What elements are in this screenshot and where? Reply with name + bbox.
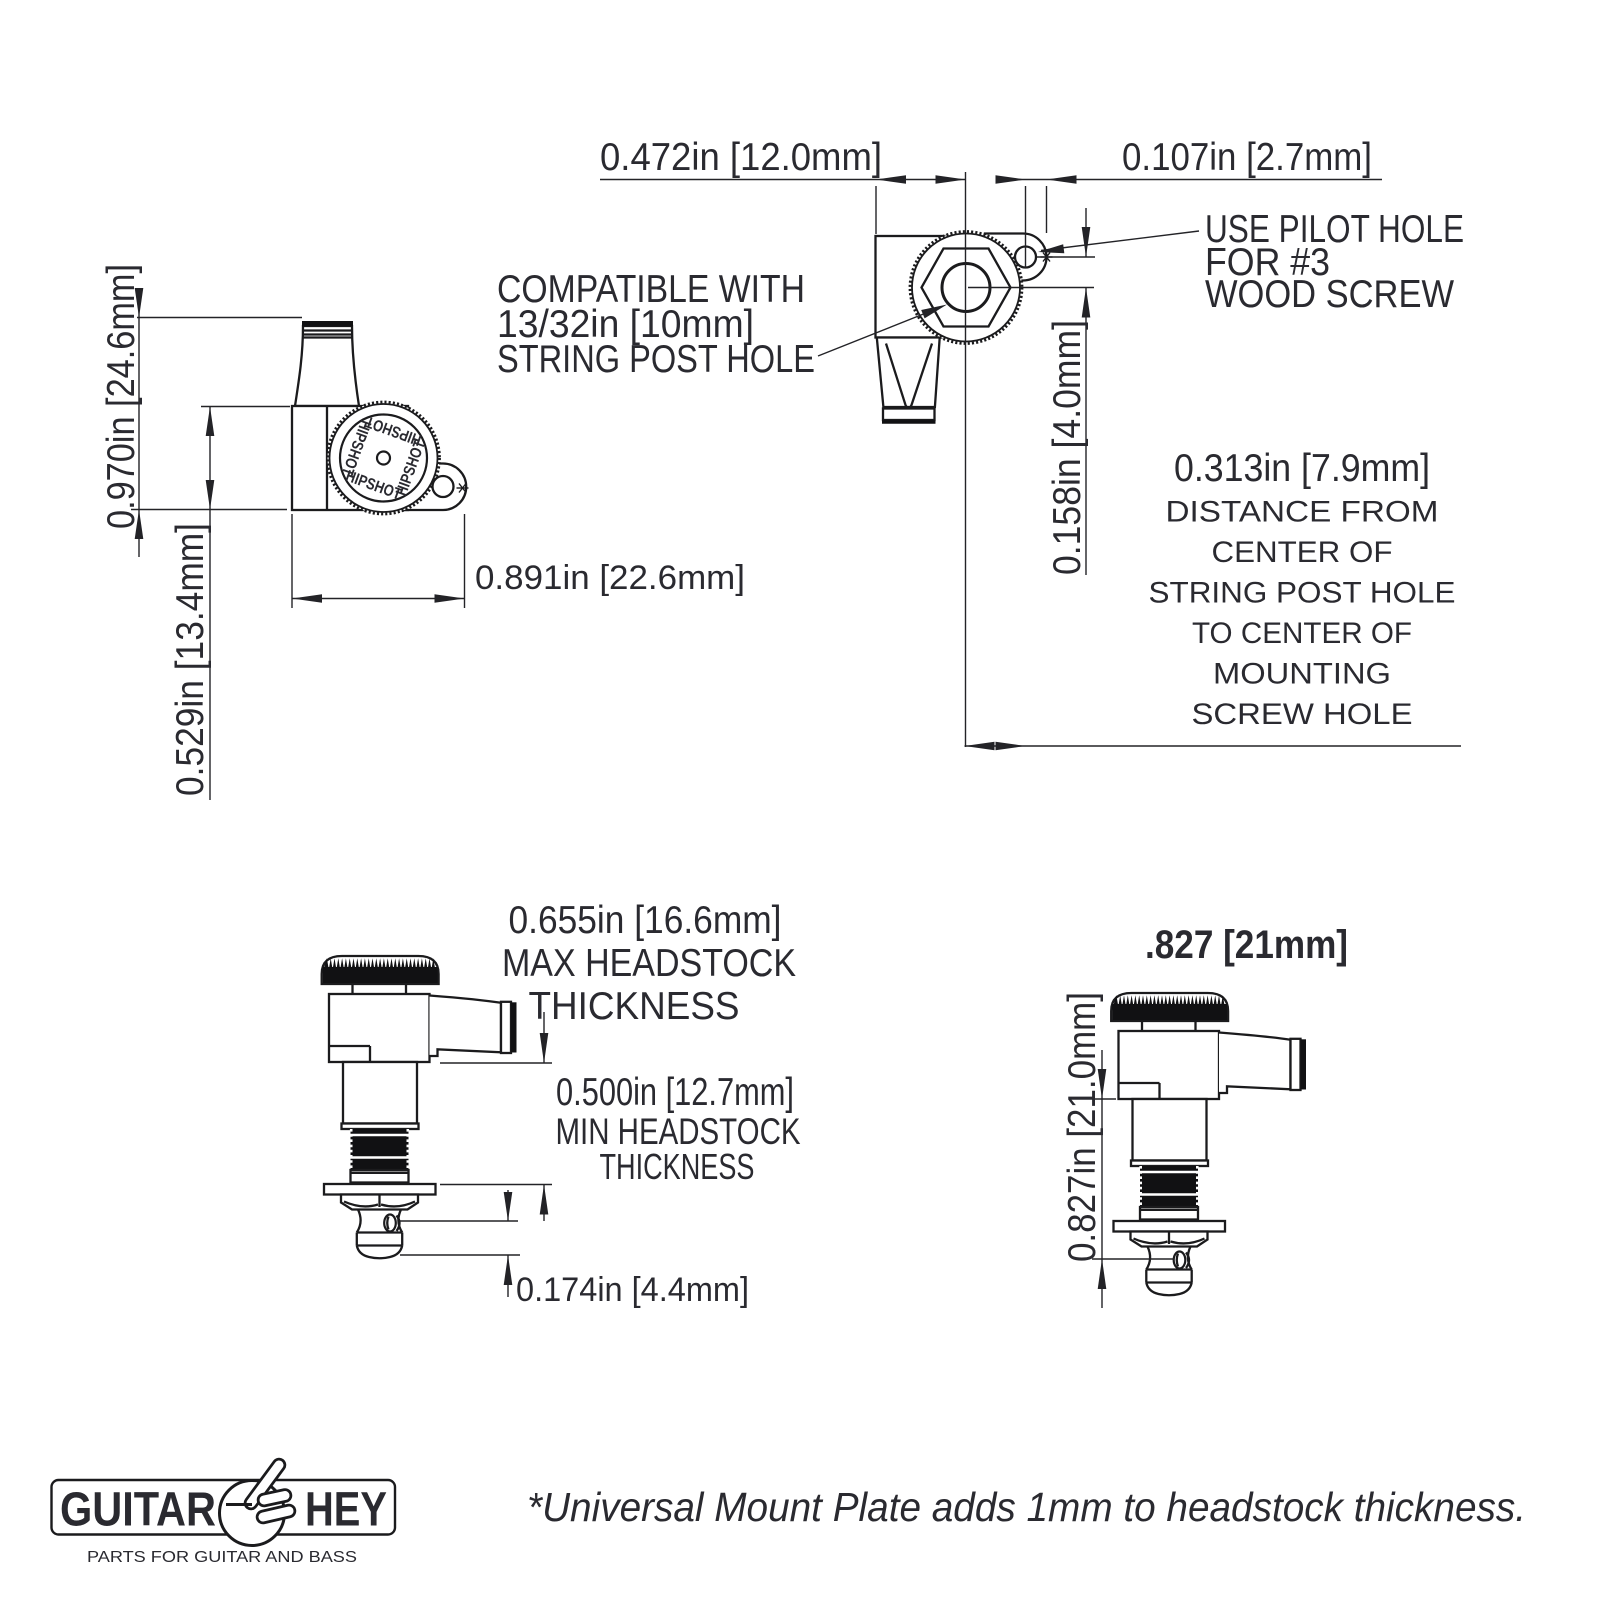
svg-text:TO CENTER OF: TO CENTER OF xyxy=(1192,617,1412,650)
svg-text:0.655in [16.6mm]: 0.655in [16.6mm] xyxy=(509,899,782,942)
svg-text:0.529in [13.4mm]: 0.529in [13.4mm] xyxy=(169,523,212,796)
svg-text:SCREW HOLE: SCREW HOLE xyxy=(1192,698,1413,731)
svg-text:THICKNESS: THICKNESS xyxy=(600,1146,755,1187)
svg-text:STRING POST HOLE: STRING POST HOLE xyxy=(497,338,815,381)
svg-text:HEY: HEY xyxy=(305,1484,387,1537)
svg-text:GUITAR: GUITAR xyxy=(60,1484,216,1537)
svg-text:MAX HEADSTOCK: MAX HEADSTOCK xyxy=(502,942,796,985)
svg-text:0.827in [21.0mm]: 0.827in [21.0mm] xyxy=(1061,992,1104,1262)
svg-text:PARTS FOR GUITAR AND BASS: PARTS FOR GUITAR AND BASS xyxy=(87,1549,357,1566)
svg-text:0.313in [7.9mm]: 0.313in [7.9mm] xyxy=(1174,447,1430,490)
svg-text:0.500in [12.7mm]: 0.500in [12.7mm] xyxy=(556,1071,794,1114)
svg-text:0.174in [4.4mm]: 0.174in [4.4mm] xyxy=(516,1271,749,1309)
svg-text:DISTANCE FROM: DISTANCE FROM xyxy=(1166,496,1439,529)
svg-text:MOUNTING: MOUNTING xyxy=(1213,658,1391,691)
svg-text:WOOD SCREW: WOOD SCREW xyxy=(1205,273,1454,316)
svg-text:0.891in [22.6mm]: 0.891in [22.6mm] xyxy=(475,559,745,597)
svg-text:0.158in [4.0mm]: 0.158in [4.0mm] xyxy=(1046,320,1089,575)
svg-text:0.472in [12.0mm]: 0.472in [12.0mm] xyxy=(600,136,882,179)
svg-text:0.970in [24.6mm]: 0.970in [24.6mm] xyxy=(100,264,143,529)
svg-text:THICKNESS: THICKNESS xyxy=(529,985,740,1028)
svg-text:STRING POST HOLE: STRING POST HOLE xyxy=(1149,577,1456,610)
svg-text:CENTER OF: CENTER OF xyxy=(1212,536,1393,569)
svg-text:0.107in [2.7mm]: 0.107in [2.7mm] xyxy=(1122,136,1372,179)
svg-text:*Universal Mount Plate adds 1m: *Universal Mount Plate adds 1mm to heads… xyxy=(527,1484,1526,1530)
svg-text:.827 [21mm]: .827 [21mm] xyxy=(1145,923,1348,967)
